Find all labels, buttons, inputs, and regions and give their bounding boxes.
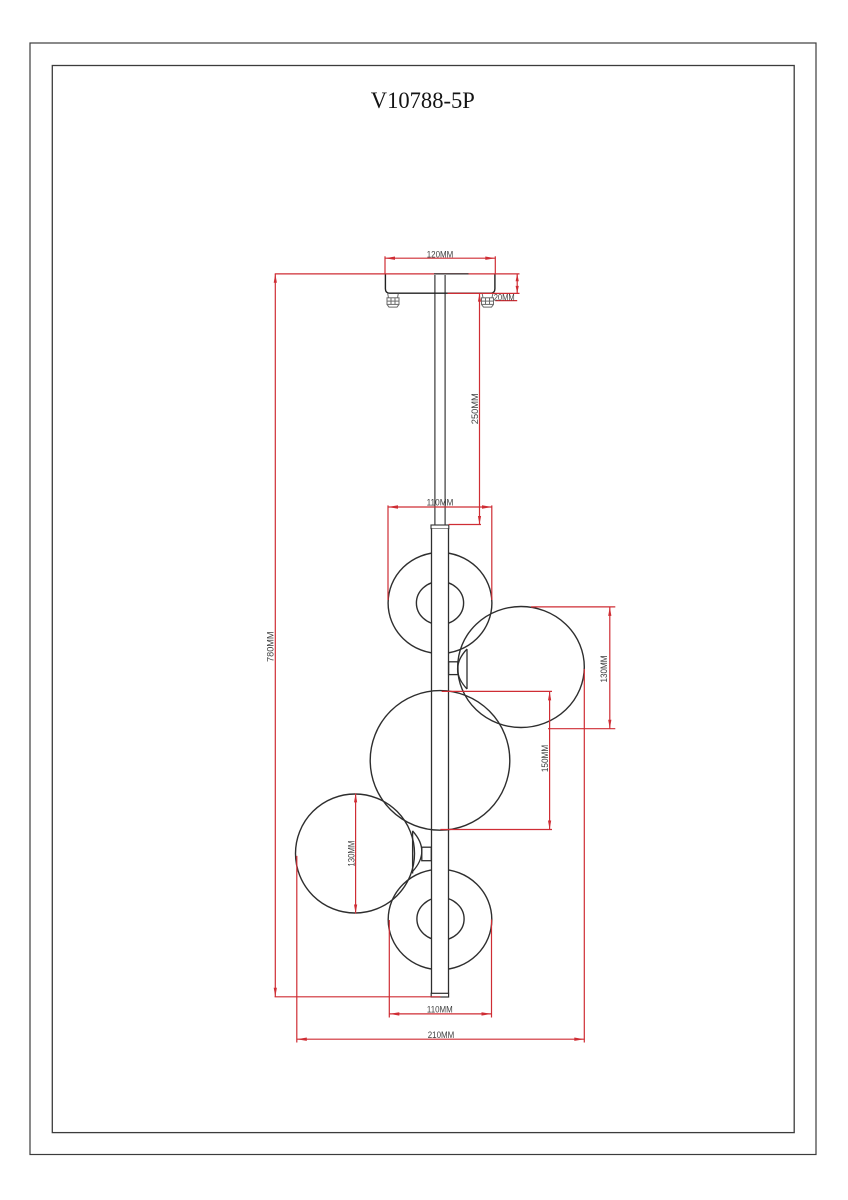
svg-text:20MM: 20MM xyxy=(494,292,515,303)
svg-text:110MM: 110MM xyxy=(427,1004,453,1015)
svg-text:120MM: 120MM xyxy=(427,249,454,260)
svg-text:250MM: 250MM xyxy=(470,393,481,424)
svg-text:130MM: 130MM xyxy=(599,655,610,682)
svg-text:V10788-5P: V10788-5P xyxy=(371,88,475,113)
svg-text:150MM: 150MM xyxy=(540,745,551,772)
svg-text:780MM: 780MM xyxy=(266,631,277,662)
svg-text:210MM: 210MM xyxy=(428,1030,455,1041)
svg-text:110MM: 110MM xyxy=(427,497,454,508)
svg-text:130MM: 130MM xyxy=(347,841,358,867)
